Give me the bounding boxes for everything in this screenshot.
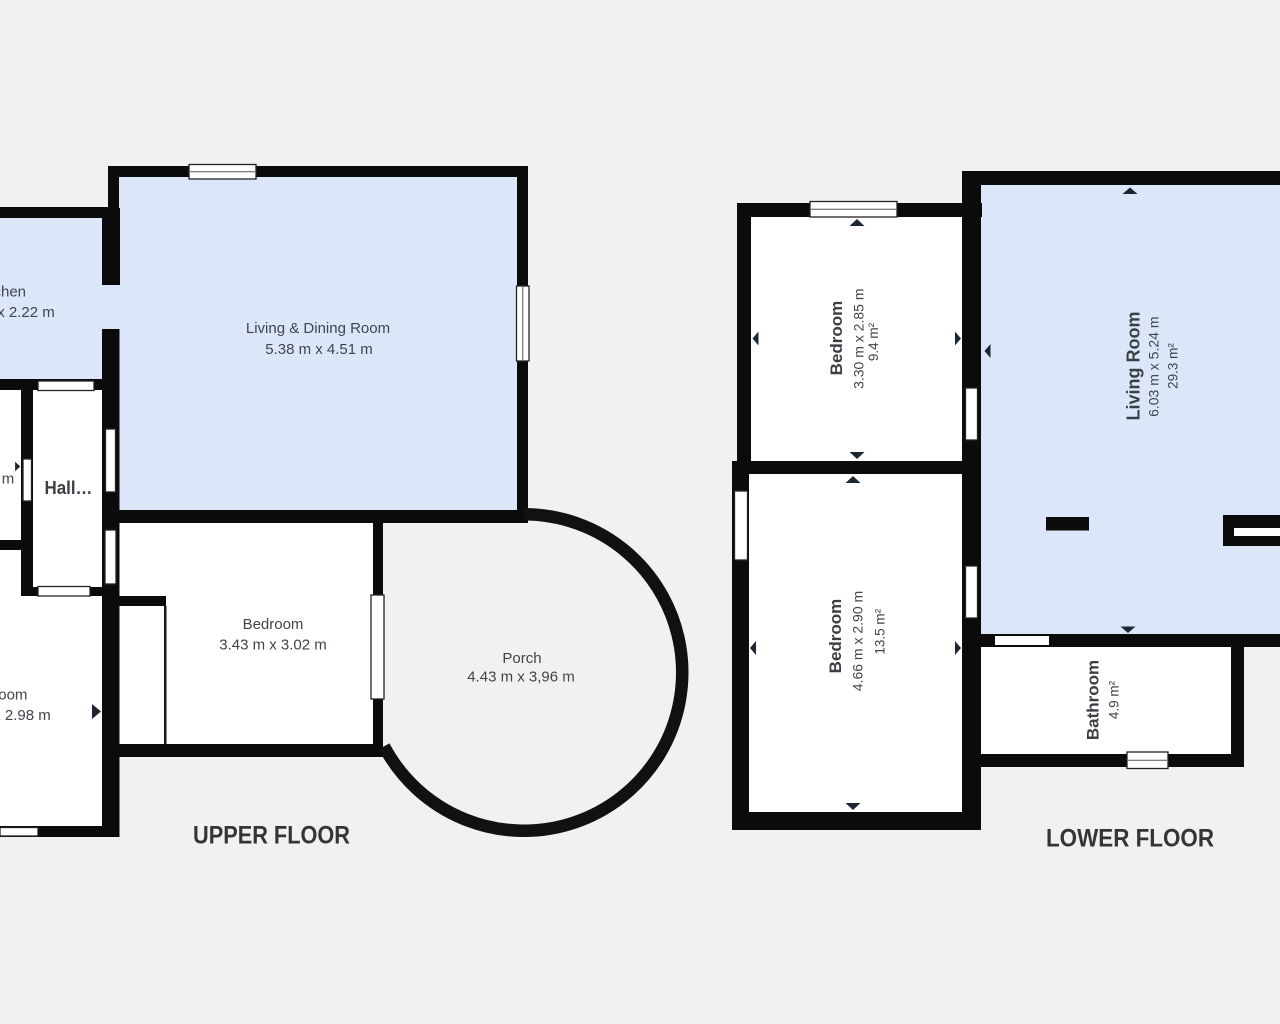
svg-text:Living Room: Living Room: [1123, 312, 1143, 421]
svg-text:Bedroom: Bedroom: [243, 616, 304, 633]
svg-text:Bedroom: Bedroom: [826, 599, 845, 674]
svg-text:5.38 m x 4.51 m: 5.38 m x 4.51 m: [265, 341, 373, 358]
svg-text:m: m: [2, 471, 15, 488]
svg-text:2.49 m x 2.22 m: 2.49 m x 2.22 m: [0, 304, 55, 321]
svg-text:Bedroom: Bedroom: [0, 687, 27, 704]
svg-text:Porch: Porch: [502, 650, 541, 667]
svg-text:6.03 m x 5.24 m: 6.03 m x 5.24 m: [1146, 317, 1162, 417]
svg-text:Bathroom: Bathroom: [1083, 660, 1102, 740]
svg-text:UPPER FLOOR: UPPER FLOOR: [193, 822, 350, 850]
svg-text:29.3 m²: 29.3 m²: [1166, 343, 1181, 389]
svg-text:3.30 m x 2.85 m: 3.30 m x 2.85 m: [851, 289, 867, 389]
svg-text:Kitchen: Kitchen: [0, 284, 26, 301]
svg-text:4.66 m x 2.90 m: 4.66 m x 2.90 m: [849, 591, 865, 691]
svg-text:3.20 m x 2.98 m: 3.20 m x 2.98 m: [0, 707, 51, 724]
svg-text:Bedroom: Bedroom: [827, 301, 846, 376]
svg-text:Hall…: Hall…: [45, 478, 93, 498]
svg-text:4.43 m x 3,96 m: 4.43 m x 3,96 m: [467, 669, 575, 686]
svg-text:4.9 m²: 4.9 m²: [1107, 680, 1122, 719]
svg-text:Living & Dining Room: Living & Dining Room: [246, 320, 390, 337]
svg-text:9.4 m²: 9.4 m²: [866, 322, 881, 361]
svg-text:LOWER FLOOR: LOWER FLOOR: [1046, 825, 1214, 853]
svg-text:13.5 m²: 13.5 m²: [873, 608, 888, 654]
svg-text:3.43 m x 3.02 m: 3.43 m x 3.02 m: [219, 637, 327, 654]
